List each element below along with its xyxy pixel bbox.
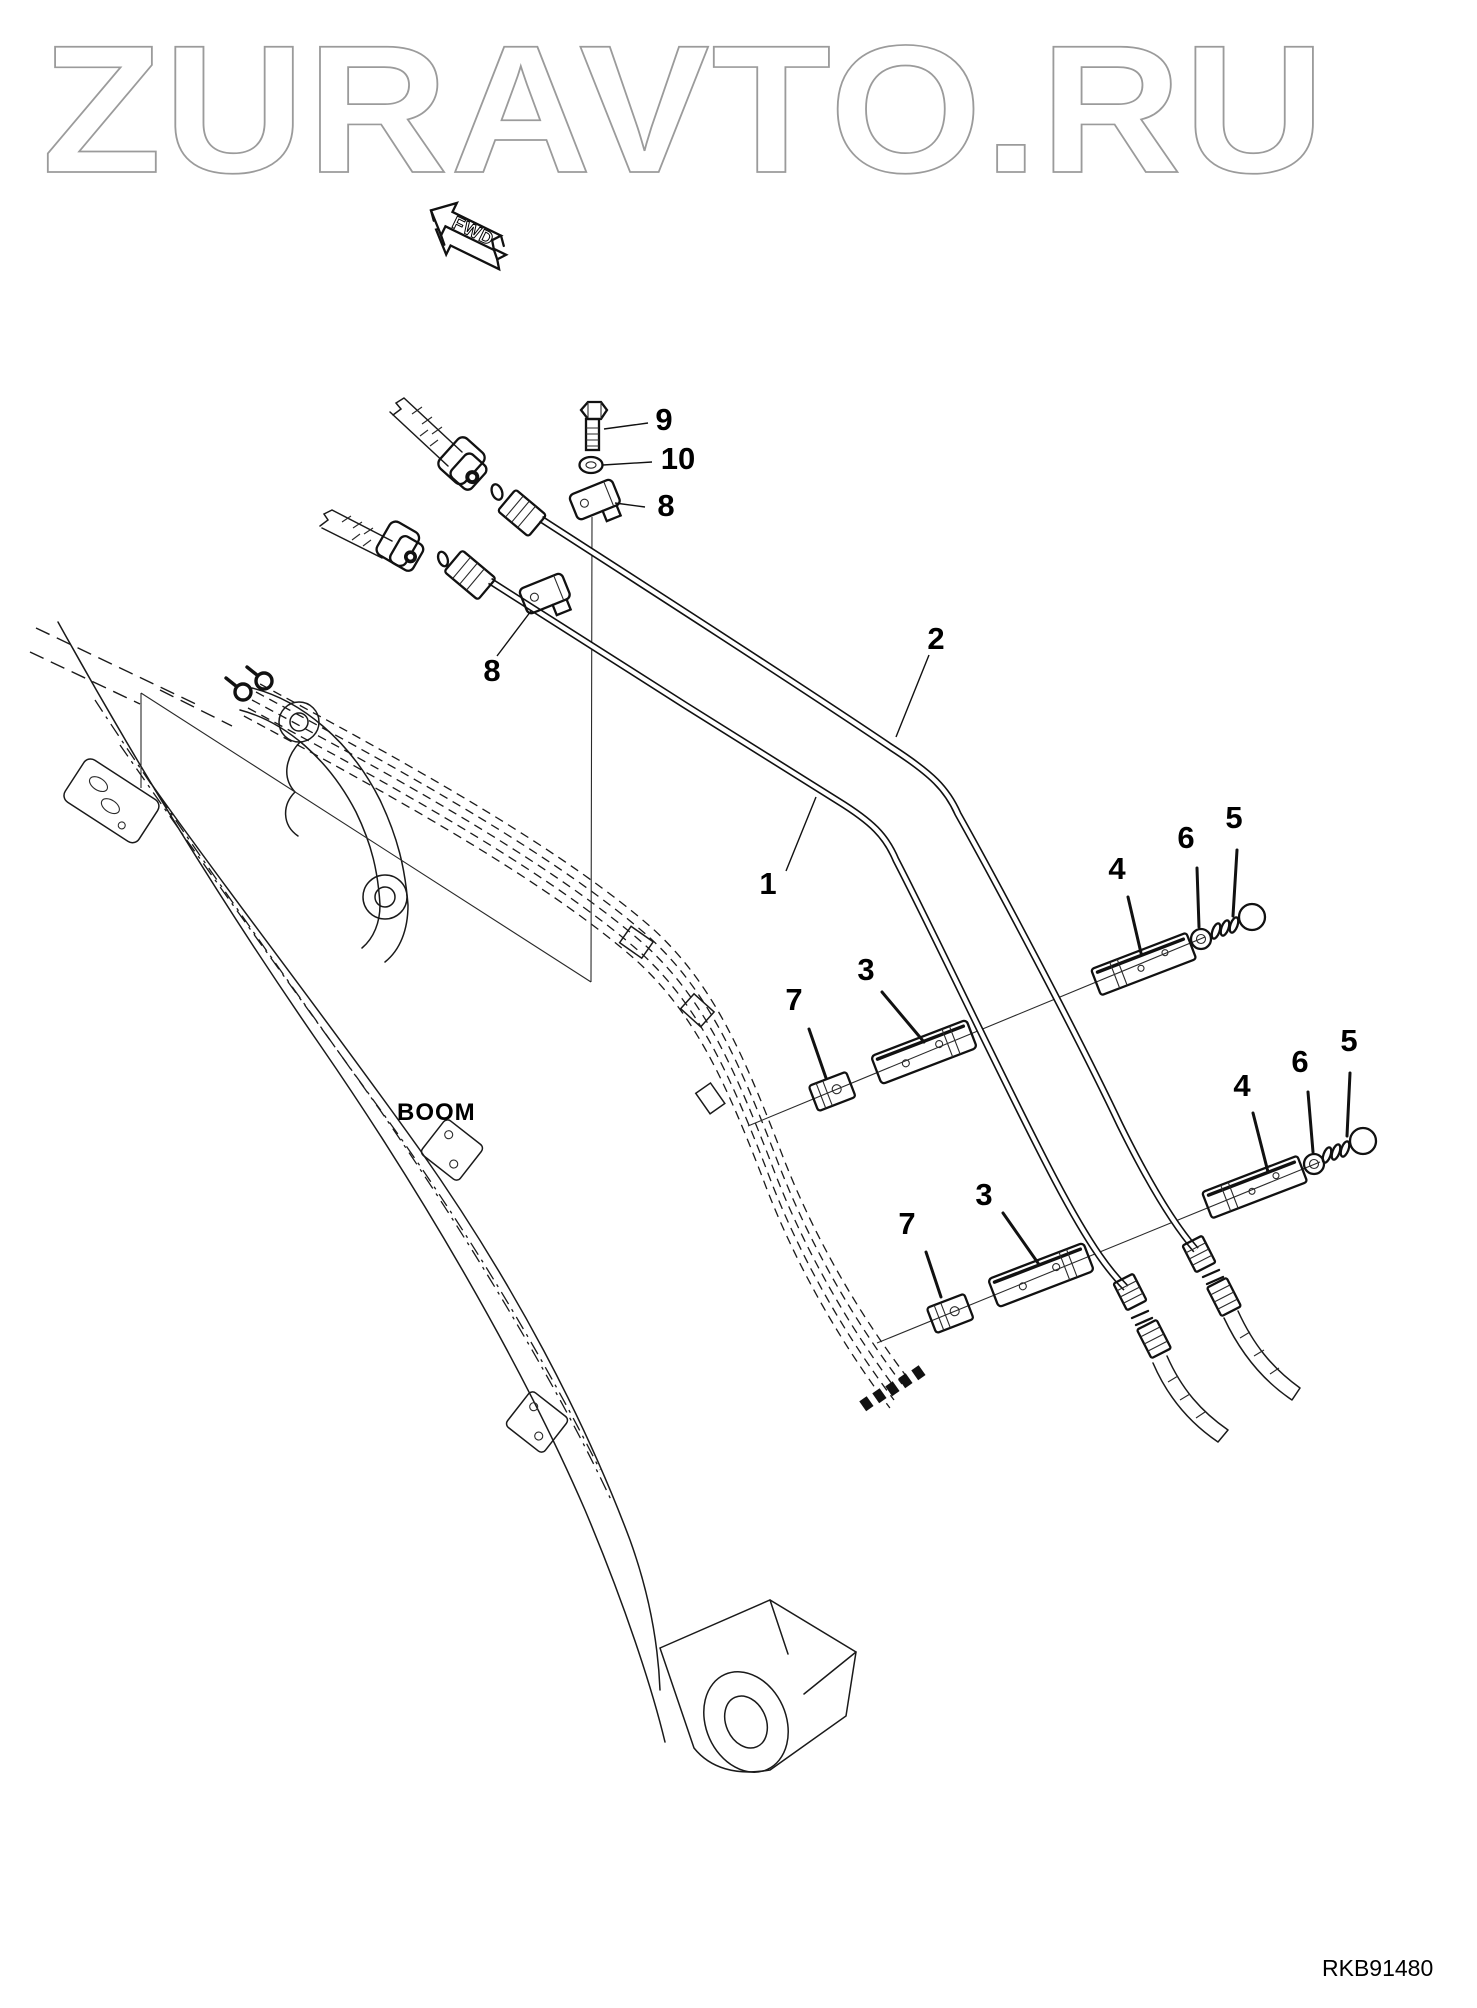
callout-3-upper: 3 xyxy=(857,952,874,987)
callout-5-upper: 5 xyxy=(1225,800,1242,835)
diagram-page: ZURAVTO.RU FWD xyxy=(0,0,1477,2008)
leader-lines xyxy=(497,423,1350,1297)
parts-diagram-canvas: ZURAVTO.RU FWD xyxy=(0,0,1477,2008)
clamp-group-upper xyxy=(809,904,1265,1111)
part-bolt-5-upper xyxy=(1210,904,1265,940)
hose-end-upper-right xyxy=(390,398,504,501)
boom-mount-plate xyxy=(61,756,162,846)
part-clamp-plate-8-upper xyxy=(568,478,625,530)
callout-10: 10 xyxy=(661,441,695,476)
pipe-1 xyxy=(444,550,1146,1310)
callout-1: 1 xyxy=(759,866,776,901)
boom-clamp-pad-2 xyxy=(505,1390,570,1454)
callout-8-upper: 8 xyxy=(657,488,674,523)
callout-7-upper: 7 xyxy=(785,982,802,1017)
callout-6-lower: 6 xyxy=(1291,1044,1308,1079)
boom-label: BOOM xyxy=(397,1099,476,1126)
callout-5-lower: 5 xyxy=(1340,1023,1357,1058)
callout-2: 2 xyxy=(927,621,944,656)
callout-4-upper: 4 xyxy=(1108,851,1126,886)
callout-7-lower: 7 xyxy=(898,1206,915,1241)
drawing-number: RKB91480 xyxy=(1322,1955,1433,1981)
callout-6-upper: 6 xyxy=(1177,820,1194,855)
hose-end-lower-left xyxy=(320,510,450,573)
part-washer-10 xyxy=(580,457,603,473)
part-bolt-9 xyxy=(581,402,607,450)
callout-9: 9 xyxy=(655,402,672,437)
hose-bundle xyxy=(226,667,926,1411)
callout-labels: 9 10 8 8 2 1 4 6 5 3 7 4 6 5 3 7 xyxy=(483,402,1357,1241)
callout-8-lower: 8 xyxy=(483,653,500,688)
watermark-text: ZURAVTO.RU xyxy=(42,7,1327,211)
boom-clamp-pad-1 xyxy=(420,1118,485,1182)
callout-4-lower: 4 xyxy=(1233,1068,1251,1103)
callout-3-lower: 3 xyxy=(975,1177,992,1212)
mating-hoses xyxy=(1132,1270,1300,1442)
fwd-arrow-label: FWD xyxy=(449,212,497,249)
